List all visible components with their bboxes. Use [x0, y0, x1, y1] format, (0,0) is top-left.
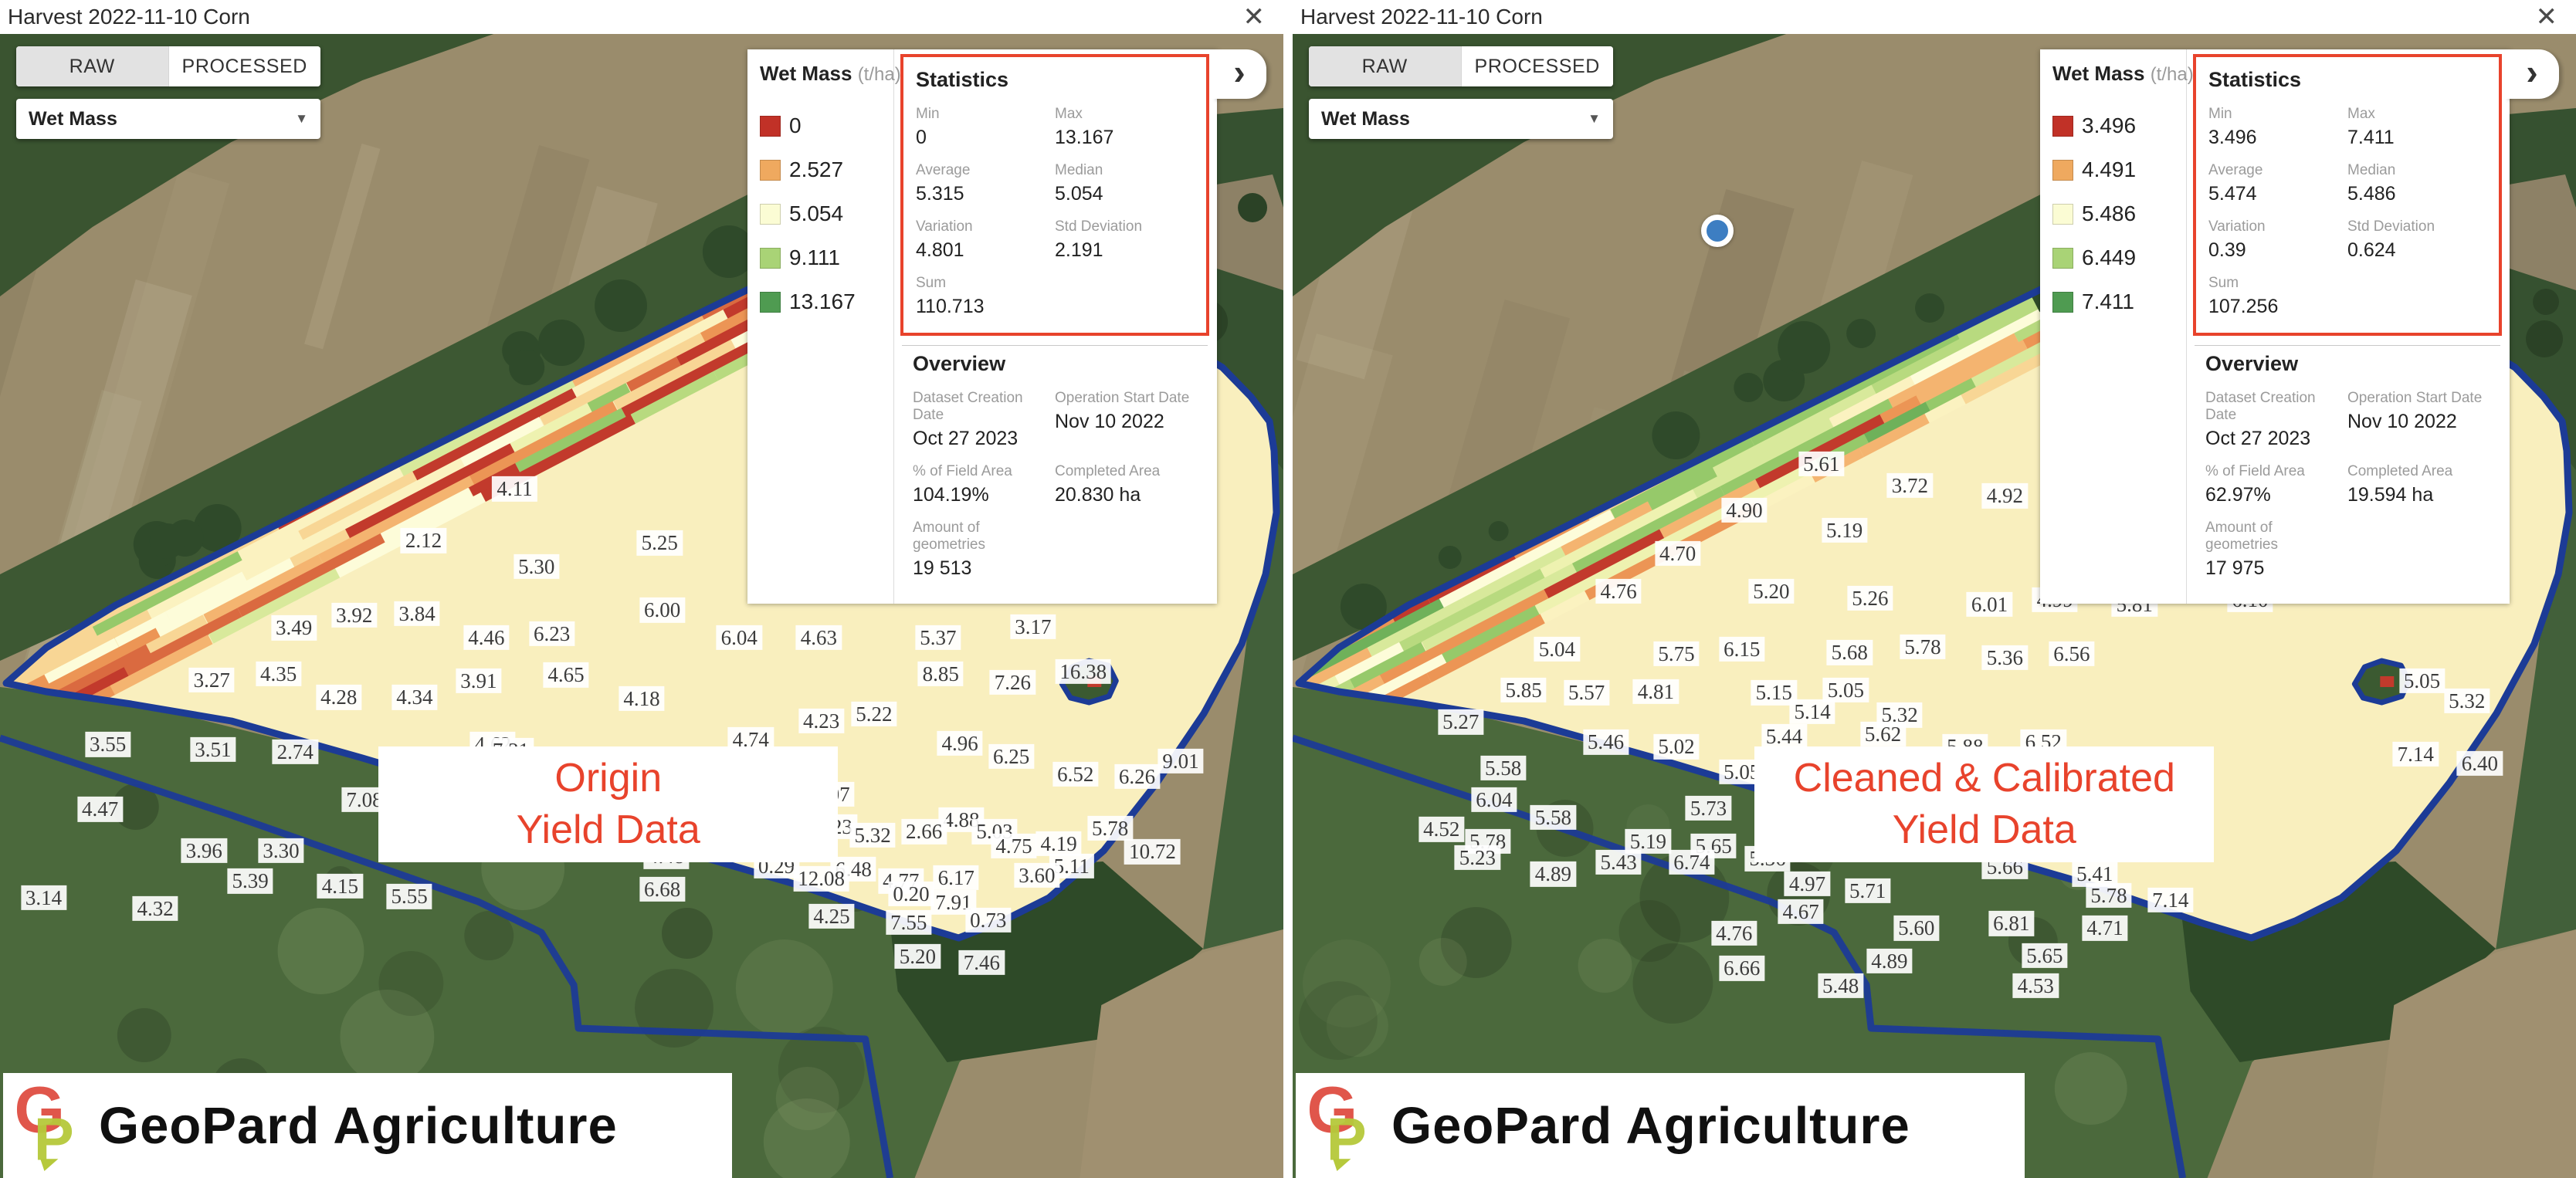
legend-swatch	[2052, 116, 2073, 137]
stat-label: Max	[2347, 106, 2486, 123]
stat-value: 5.474	[2208, 183, 2347, 205]
stat-entry: Average5.315	[916, 162, 1055, 205]
overview-label: Amount of geometries	[913, 520, 1055, 553]
legend-swatch	[2052, 160, 2073, 181]
overview-label: Amount of geometries	[2205, 520, 2347, 553]
stat-label: Std Deviation	[1055, 218, 1194, 235]
geopard-logo-icon: G P	[15, 1080, 90, 1171]
overview-entry: Dataset Creation DateOct 27 2023	[2205, 390, 2347, 450]
page-title: Harvest 2022-11-10 Corn	[1300, 5, 1543, 29]
stat-value: 7.411	[2347, 127, 2486, 149]
overview-label: Operation Start Date	[1055, 390, 1197, 407]
stat-entry: Std Deviation2.191	[1055, 218, 1194, 262]
stat-entry: Min3.496	[2208, 106, 2347, 149]
legend-swatch	[760, 292, 781, 313]
stat-value: 107.256	[2208, 296, 2347, 318]
overview-section: Overview Dataset Creation DateOct 27 202…	[2193, 352, 2502, 602]
legend-item: 6.449	[2052, 245, 2178, 270]
legend-value-label: 0	[789, 113, 802, 138]
geopard-logo-icon: G P	[1308, 1080, 1382, 1171]
overview-entry: Operation Start DateNov 10 2022	[2347, 390, 2490, 450]
stat-value: 4.801	[916, 239, 1055, 262]
caption-line: Origin	[554, 753, 662, 805]
stat-label: Variation	[916, 218, 1055, 235]
overview-entry: Completed Area20.830 ha	[1055, 463, 1197, 506]
stat-label: Average	[916, 162, 1055, 179]
legend-item: 5.486	[2052, 201, 2178, 226]
overview-value: 20.830 ha	[1055, 484, 1197, 506]
stats-column: Statistics Min0Max13.167Average5.315Medi…	[894, 49, 1217, 604]
stat-entry: Max7.411	[2347, 106, 2486, 149]
chevron-down-icon: ▼	[295, 111, 308, 127]
logo-text: GeoPard Agriculture	[99, 1096, 618, 1156]
stat-entry: Max13.167	[1055, 106, 1194, 149]
stat-label: Std Deviation	[2347, 218, 2486, 235]
overview-value: 17 975	[2205, 557, 2347, 580]
legend-items: 3.4964.4915.4866.4497.411	[2052, 113, 2178, 314]
legend-value-label: 5.486	[2082, 201, 2136, 226]
stat-value: 5.486	[2347, 183, 2486, 205]
overview-value: 19 513	[913, 557, 1055, 580]
statistics-title: Statistics	[2208, 68, 2486, 92]
stat-label: Median	[2347, 162, 2486, 179]
overview-title: Overview	[2205, 352, 2490, 376]
stat-entry: Std Deviation0.624	[2347, 218, 2486, 262]
statistics-grid: Min0Max13.167Average5.315Median5.054Vari…	[916, 106, 1194, 331]
legend-swatch	[760, 160, 781, 181]
collapse-panel-button[interactable]: ›	[2505, 49, 2559, 99]
legend-value-label: 5.054	[789, 201, 843, 226]
logo-text: GeoPard Agriculture	[1391, 1096, 1910, 1156]
stat-label: Min	[2208, 106, 2347, 123]
overview-value: 62.97%	[2205, 484, 2347, 506]
stat-label: Average	[2208, 162, 2347, 179]
legend-item: 13.167	[760, 289, 886, 314]
close-icon[interactable]: ✕	[2536, 0, 2558, 34]
stat-value: 110.713	[916, 296, 1055, 318]
legend-swatch	[760, 204, 781, 225]
overview-value: Nov 10 2022	[1055, 411, 1197, 433]
stat-entry: Min0	[916, 106, 1055, 149]
stat-label: Max	[1055, 106, 1194, 123]
geopard-logo: G P GeoPard Agriculture	[3, 1073, 732, 1178]
raw-tab[interactable]: RAW	[1309, 46, 1461, 86]
overview-grid: Dataset Creation DateOct 27 2023Operatio…	[2205, 390, 2490, 593]
overview-label: % of Field Area	[913, 463, 1055, 480]
statistics-grid: Min3.496Max7.411Average5.474Median5.486V…	[2208, 106, 2486, 331]
statistics-title: Statistics	[916, 68, 1194, 92]
legend-item: 4.491	[2052, 157, 2178, 182]
chevron-right-icon: ›	[1233, 51, 1245, 93]
caption-line: Yield Data	[1893, 804, 2076, 857]
overview-label: Completed Area	[2347, 463, 2490, 480]
legend-item: 0	[760, 113, 886, 138]
statistics-highlight-box: Statistics Min0Max13.167Average5.315Medi…	[900, 54, 1209, 336]
legend-item: 7.411	[2052, 289, 2178, 314]
stat-label: Sum	[2208, 275, 2347, 292]
legend-item: 2.527	[760, 157, 886, 182]
stat-entry: Average5.474	[2208, 162, 2347, 205]
legend-title: Wet Mass (t/ha)	[2052, 62, 2178, 86]
legend-title: Wet Mass (t/ha)	[760, 62, 886, 86]
legend: Wet Mass (t/ha) 02.5275.0549.11113.167	[747, 49, 894, 604]
overview-entry: Amount of geometries17 975	[2205, 520, 2347, 580]
location-marker-dot	[1701, 215, 1734, 247]
stat-value: 5.054	[1055, 183, 1194, 205]
stat-value: 5.315	[916, 183, 1055, 205]
overview-label: % of Field Area	[2205, 463, 2347, 480]
annotation-caption: OriginYield Data	[378, 746, 838, 862]
processed-tab[interactable]: PROCESSED	[168, 46, 321, 86]
caption-line: Yield Data	[517, 804, 700, 857]
overview-value: Oct 27 2023	[2205, 428, 2347, 450]
overview-label: Dataset Creation Date	[2205, 390, 2347, 424]
stat-label: Min	[916, 106, 1055, 123]
legend-items: 02.5275.0549.11113.167	[760, 113, 886, 314]
stat-entry: Sum110.713	[916, 275, 1055, 318]
overview-value: 19.594 ha	[2347, 484, 2490, 506]
info-card: › Wet Mass (t/ha) 3.4964.4915.4866.4497.…	[2040, 49, 2510, 604]
overview-section: Overview Dataset Creation DateOct 27 202…	[900, 352, 1209, 602]
legend-value-label: 9.111	[789, 245, 840, 270]
stat-value: 13.167	[1055, 127, 1194, 149]
legend-value-label: 6.449	[2082, 245, 2136, 270]
overview-value: 104.19%	[913, 484, 1055, 506]
annotation-caption: Cleaned & CalibratedYield Data	[1754, 746, 2214, 862]
statistics-highlight-box: Statistics Min3.496Max7.411Average5.474M…	[2193, 54, 2502, 336]
legend-item: 5.054	[760, 201, 886, 226]
overview-grid: Dataset Creation DateOct 27 2023Operatio…	[913, 390, 1197, 593]
panel-header: Harvest 2022-11-10 Corn ✕	[0, 0, 1283, 34]
collapse-panel-button[interactable]: ›	[1212, 49, 1266, 99]
legend-swatch	[2052, 204, 2073, 225]
attribute-dropdown-value: Wet Mass	[29, 108, 117, 130]
caption-line: Cleaned & Calibrated	[1794, 753, 2175, 805]
legend-value-label: 13.167	[789, 289, 856, 314]
overview-value: Nov 10 2022	[2347, 411, 2490, 433]
overview-label: Operation Start Date	[2347, 390, 2490, 407]
legend-swatch	[760, 248, 781, 269]
overview-entry: Amount of geometries19 513	[913, 520, 1055, 580]
stat-value: 0.624	[2347, 239, 2486, 262]
legend-value-label: 3.496	[2082, 113, 2136, 138]
attribute-dropdown[interactable]: Wet Mass ▼	[16, 99, 320, 139]
legend-value-label: 4.491	[2082, 157, 2136, 182]
overview-entry: Completed Area19.594 ha	[2347, 463, 2490, 506]
chevron-down-icon: ▼	[1588, 111, 1601, 127]
stat-value: 0.39	[2208, 239, 2347, 262]
chevron-right-icon: ›	[2526, 51, 2537, 93]
panel-header: Harvest 2022-11-10 Corn ✕	[1293, 0, 2576, 34]
overview-label: Completed Area	[1055, 463, 1197, 480]
info-card: › Wet Mass (t/ha) 02.5275.0549.11113.167…	[747, 49, 1217, 604]
overview-entry: % of Field Area62.97%	[2205, 463, 2347, 506]
processed-tab[interactable]: PROCESSED	[1461, 46, 1614, 86]
attribute-dropdown[interactable]: Wet Mass ▼	[1309, 99, 1613, 139]
yield-panel: Harvest 2022-11-10 Corn ✕ 4.112.125.255.…	[0, 0, 1283, 1178]
split-compare-view: Harvest 2022-11-10 Corn ✕ 4.112.125.255.…	[0, 0, 2576, 1178]
stat-label: Variation	[2208, 218, 2347, 235]
raw-processed-toggle: RAW PROCESSED	[1309, 46, 1613, 86]
overview-title: Overview	[913, 352, 1197, 376]
raw-tab[interactable]: RAW	[16, 46, 168, 86]
stat-value: 2.191	[1055, 239, 1194, 262]
geopard-logo: G P GeoPard Agriculture	[1296, 1073, 2025, 1178]
divider	[902, 345, 1208, 346]
stat-entry: Variation0.39	[2208, 218, 2347, 262]
legend-value-label: 7.411	[2082, 289, 2134, 314]
overview-label: Dataset Creation Date	[913, 390, 1055, 424]
overview-entry: % of Field Area104.19%	[913, 463, 1055, 506]
overview-entry: Dataset Creation DateOct 27 2023	[913, 390, 1055, 450]
legend-item: 9.111	[760, 245, 886, 270]
legend-value-label: 2.527	[789, 157, 843, 182]
page-title: Harvest 2022-11-10 Corn	[8, 5, 250, 29]
stat-entry: Sum107.256	[2208, 275, 2347, 318]
close-icon[interactable]: ✕	[1243, 0, 1266, 34]
raw-processed-toggle: RAW PROCESSED	[16, 46, 320, 86]
legend-swatch	[2052, 248, 2073, 269]
divider	[2195, 345, 2500, 346]
stats-column: Statistics Min3.496Max7.411Average5.474M…	[2187, 49, 2510, 604]
stat-entry: Median5.054	[1055, 162, 1194, 205]
legend-swatch	[760, 116, 781, 137]
panel-gutter	[1283, 0, 1293, 1178]
attribute-dropdown-value: Wet Mass	[1321, 108, 1410, 130]
stat-value: 3.496	[2208, 127, 2347, 149]
stat-entry: Median5.486	[2347, 162, 2486, 205]
stat-label: Median	[1055, 162, 1194, 179]
overview-value: Oct 27 2023	[913, 428, 1055, 450]
overview-entry: Operation Start DateNov 10 2022	[1055, 390, 1197, 450]
stat-label: Sum	[916, 275, 1055, 292]
legend: Wet Mass (t/ha) 3.4964.4915.4866.4497.41…	[2040, 49, 2187, 604]
yield-panel: Harvest 2022-11-10 Corn ✕ 5.613.724.926.…	[1293, 0, 2576, 1178]
legend-swatch	[2052, 292, 2073, 313]
stat-entry: Variation4.801	[916, 218, 1055, 262]
stat-value: 0	[916, 127, 1055, 149]
legend-item: 3.496	[2052, 113, 2178, 138]
